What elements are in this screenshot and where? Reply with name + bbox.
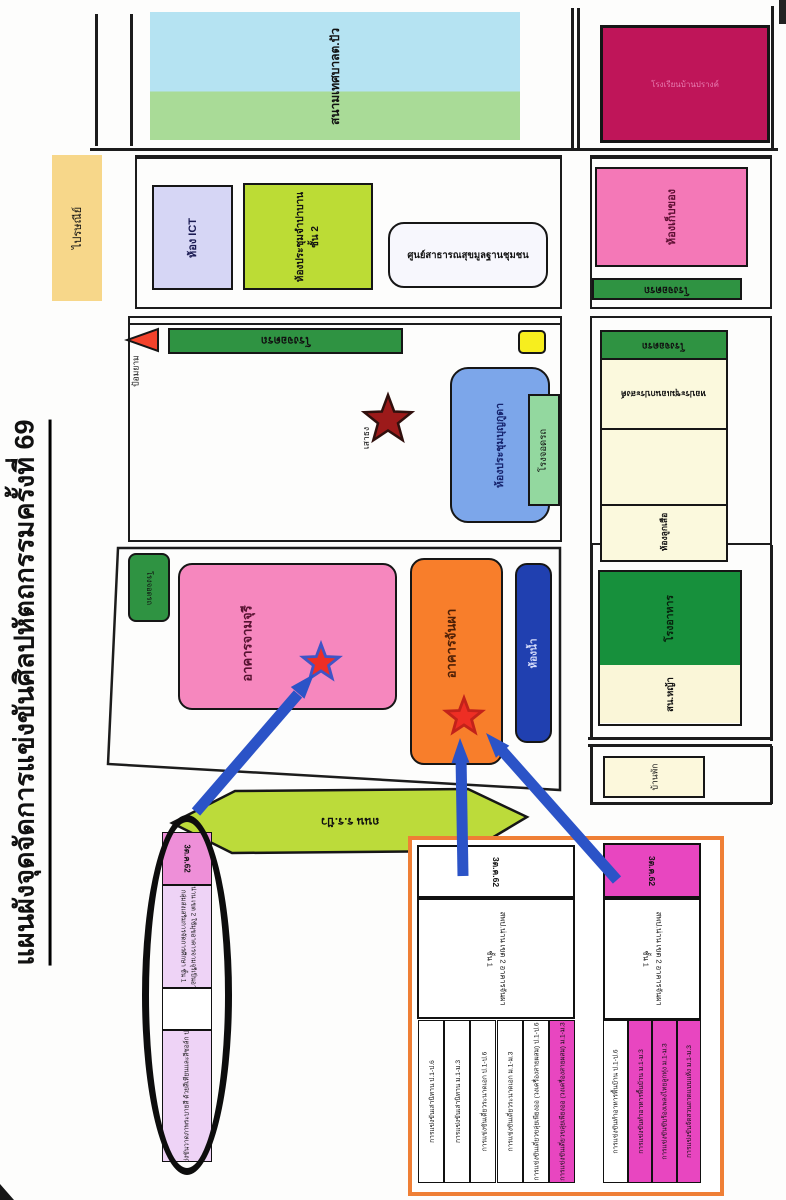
arrow-righttable-to-janpha-star xyxy=(486,733,617,880)
page-title-wrap: แผนผังจุดจัดการแข่งขันศิลปหัตถกรรมครั้งท… xyxy=(0,318,54,1066)
arrow-lefttable-to-janpha-star xyxy=(452,738,470,876)
pointer-arrows xyxy=(0,0,786,1200)
arrow-ellipse-to-jamjuree-star xyxy=(196,674,314,812)
scanned-campus-map-page: สนามเทศบาลต.ปัว โรงเรียนบ้านปรางค์ ไปรษณ… xyxy=(0,0,786,1200)
page-title: แผนผังจุดจัดการแข่งขันศิลปหัตถกรรมครั้งท… xyxy=(3,419,52,965)
